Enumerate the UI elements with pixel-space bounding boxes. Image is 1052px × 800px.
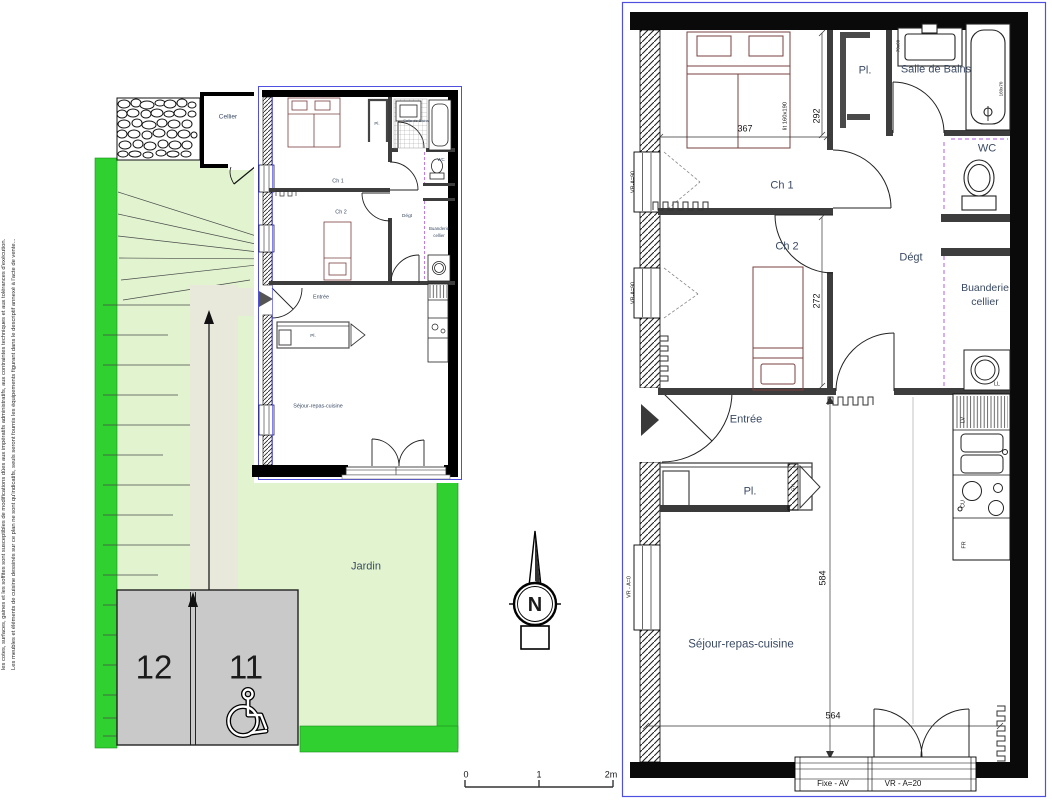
room-sdb-label: Salle de Bains xyxy=(901,65,971,76)
disclaimer-line1: les cotes, surfaces, gaines et les soffi… xyxy=(0,160,9,670)
mini-buanderie-label-1: Buanderie xyxy=(429,227,449,231)
mini-ch1-label: Ch 1 xyxy=(332,178,343,183)
dim-bath: 160x70 xyxy=(999,82,1004,97)
room-sejour-label: Séjour-repas-cuisine xyxy=(688,639,793,651)
roller-label: VR - A=20 xyxy=(885,780,922,788)
dim-564: 564 xyxy=(825,712,840,721)
fridge-label: FR xyxy=(961,541,966,548)
disclaimer-line2: Les meubles et éléments de cuisine dessi… xyxy=(9,160,19,670)
mini-entree-label: Entrée xyxy=(313,294,329,299)
gtl-label: GTL xyxy=(791,483,796,492)
room-wc-label: WC xyxy=(978,144,996,155)
dim-bed: lit 160x190 xyxy=(782,102,788,130)
room-pl-label: Pl. xyxy=(744,487,757,498)
cellier-label: Cellier xyxy=(219,114,237,121)
room-pl-top-label: Pl. xyxy=(859,66,872,77)
parking-space-11: 11 xyxy=(229,651,263,684)
mini-plan xyxy=(252,83,462,483)
jardin-label: Jardin xyxy=(351,562,381,573)
stone-hatch-area xyxy=(117,98,200,160)
dim-272: 272 xyxy=(813,293,822,308)
room-buanderie-label-2: cellier xyxy=(971,297,998,308)
compass-north-label: N xyxy=(528,595,542,615)
mini-pl-top-label: Pl. xyxy=(374,122,379,126)
mini-degt-label: Dégt xyxy=(402,214,412,219)
washer-label: LL xyxy=(994,381,1000,386)
room-ch1-label: Ch 1 xyxy=(770,181,793,192)
dim-sink: 70x60 xyxy=(896,40,901,52)
room-ch2-label: Ch 2 xyxy=(775,242,798,253)
dim-584: 584 xyxy=(819,570,828,585)
room-entree-label: Entrée xyxy=(730,415,762,426)
mini-sejour-label: Séjour-repas-cuisine xyxy=(293,403,343,408)
fixed-panel-label: Fixe - AV xyxy=(817,780,849,788)
mini-sdb-label: Salle de Bains xyxy=(403,119,429,123)
parking-space-12: 12 xyxy=(136,651,173,684)
dim-292: 292 xyxy=(813,108,822,123)
floorplan-page: les cotes, surfaces, gaines et les soffi… xyxy=(0,0,1052,800)
main-plan xyxy=(623,3,1046,797)
window3-label: VR - A=0 xyxy=(626,576,631,598)
mini-buanderie-label-2: cellier xyxy=(433,234,444,238)
window1-label: VR-A=90 xyxy=(630,171,635,193)
mini-ch2-label: Ch 2 xyxy=(335,209,346,214)
scale-2m: 2m xyxy=(605,771,618,780)
scale-1: 1 xyxy=(536,771,541,780)
disclaimer-text: les cotes, surfaces, gaines et les soffi… xyxy=(0,160,21,670)
scale-bar xyxy=(465,780,613,787)
mini-wc-label: WC xyxy=(437,158,444,162)
compass xyxy=(509,531,561,649)
window2-label: VR-A=90 xyxy=(630,282,635,304)
dim-367: 367 xyxy=(737,125,752,134)
room-degt-label: Dégt xyxy=(899,253,922,264)
cooktop-label: CU xyxy=(960,500,965,508)
scale-0: 0 xyxy=(463,771,468,780)
mini-pl-label: Pl. xyxy=(310,334,316,339)
dishwasher-label: LV xyxy=(960,417,965,423)
room-buanderie-label-1: Buanderie xyxy=(961,283,1009,294)
